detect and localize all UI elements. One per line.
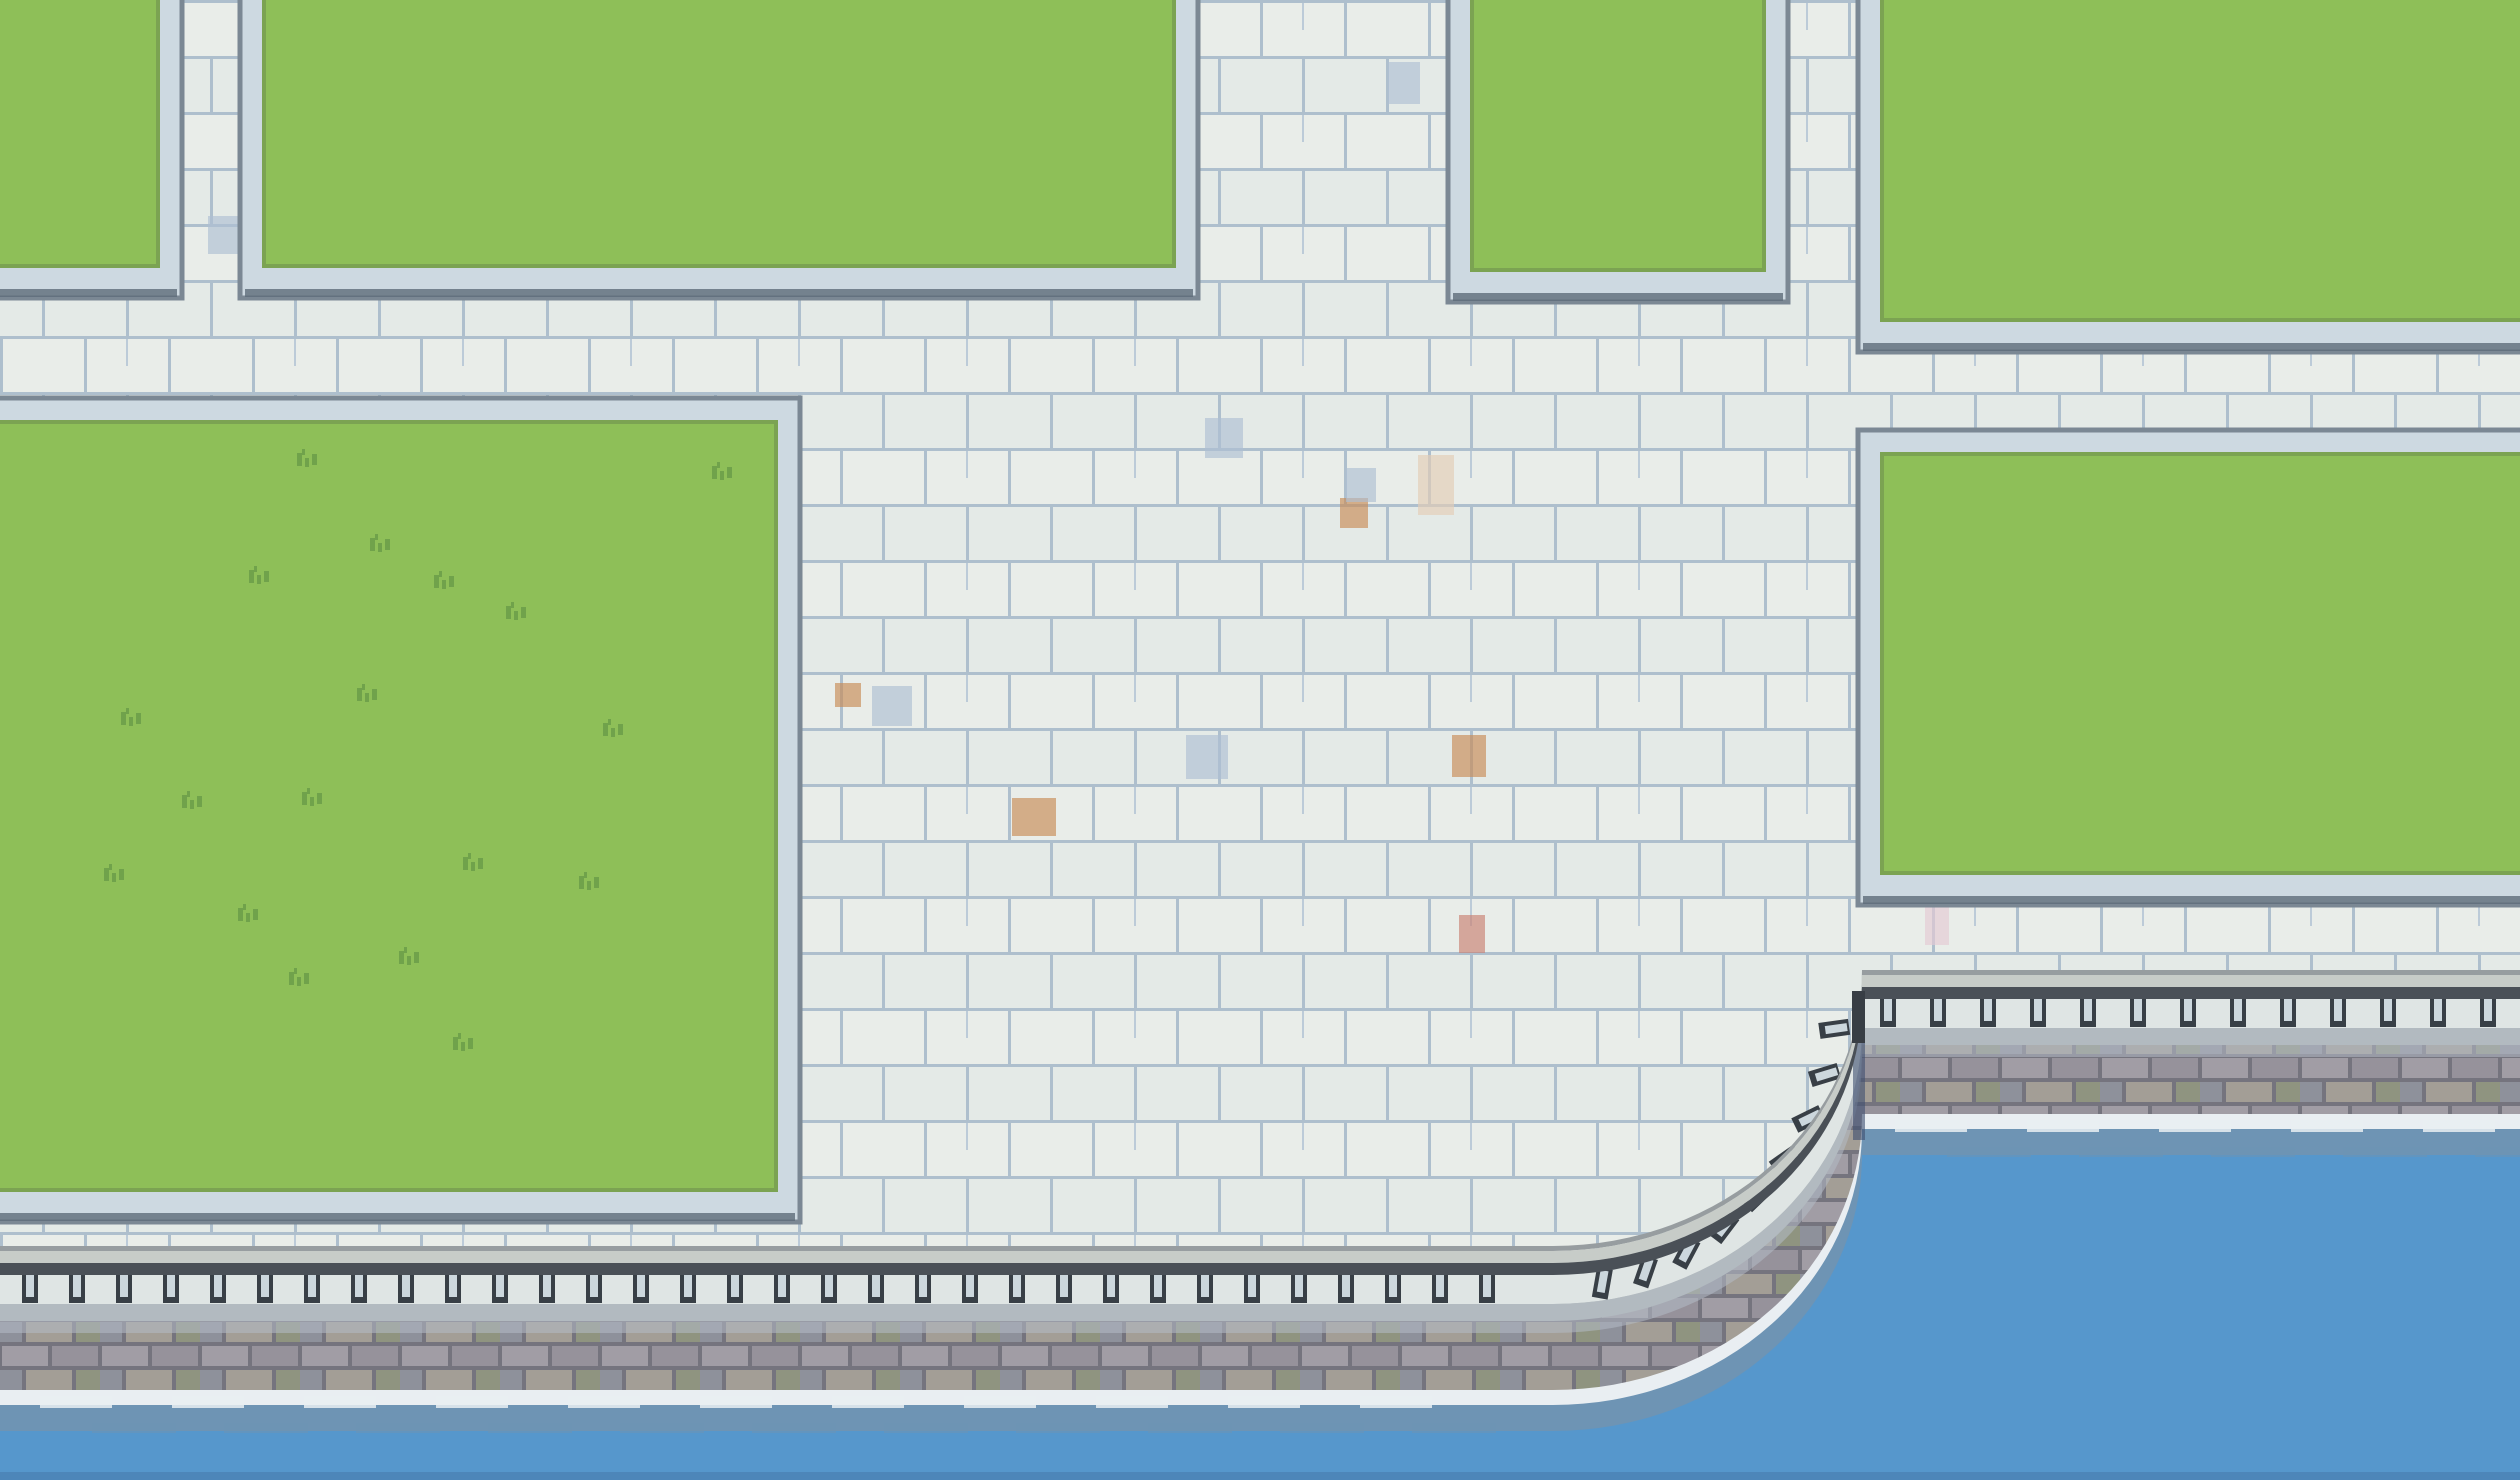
rail-post [1103, 1273, 1119, 1303]
rail-post [727, 1273, 743, 1303]
water-step [224, 1423, 308, 1433]
accent-tile [1012, 798, 1056, 836]
water-step [1148, 1423, 1232, 1433]
rail-post [633, 1273, 649, 1303]
rail-post [304, 1273, 320, 1303]
rail-post [680, 1273, 696, 1303]
grass-patch [0, 0, 182, 298]
accent-tile [1459, 915, 1485, 953]
rail-post [1150, 1273, 1166, 1303]
rail-post [2180, 997, 2196, 1027]
foam-step [700, 1396, 772, 1408]
rail-post [1197, 1273, 1213, 1303]
grass-area [0, 0, 158, 266]
foam-step [1895, 1120, 1967, 1132]
foam-step [2423, 1120, 2495, 1132]
rail-post [2280, 997, 2296, 1027]
rail-post [257, 1273, 273, 1303]
water-step [1947, 1147, 2031, 1157]
grass-curb-shadow [1863, 896, 2520, 904]
rail-post [774, 1273, 790, 1303]
accent-tile [1925, 903, 1949, 945]
rail-post [539, 1273, 555, 1303]
grass-curb-shadow [245, 289, 1193, 297]
rail-post [1930, 997, 1946, 1027]
rail-post [2480, 997, 2496, 1027]
rail-post [586, 1273, 602, 1303]
rail-post [2330, 997, 2346, 1027]
rail-post [1291, 1273, 1307, 1303]
game-viewport[interactable] [0, 0, 2520, 1480]
accent-tile [1418, 455, 1454, 515]
accent-tile [1186, 735, 1228, 779]
foam-step [2291, 1120, 2363, 1132]
foam-step [2159, 1120, 2231, 1132]
water-step [1280, 1423, 1364, 1433]
grass-patch [1858, 0, 2520, 352]
rail-post [1056, 1273, 1072, 1303]
accent-tile [1388, 62, 1420, 104]
foam-step [1096, 1396, 1168, 1408]
rail-post [22, 1273, 38, 1303]
rail-post [163, 1273, 179, 1303]
grass-area [1882, 0, 2520, 320]
grass-patch [1448, 0, 1788, 302]
rail-post [1980, 997, 1996, 1027]
foam-step [832, 1396, 904, 1408]
accent-tile [208, 216, 242, 254]
rail-post [868, 1273, 884, 1303]
water-step [752, 1423, 836, 1433]
rail-post [2080, 997, 2096, 1027]
grass-area [1472, 0, 1764, 270]
rail-post [1432, 1273, 1448, 1303]
rail-corner-post [1852, 991, 1865, 1043]
grass-patch [1858, 430, 2520, 905]
foam-step [568, 1396, 640, 1408]
water-step [488, 1423, 572, 1433]
grass-curb-shadow [0, 1213, 795, 1221]
rail-post [1244, 1273, 1260, 1303]
water-step [2211, 1147, 2295, 1157]
water-step [2343, 1147, 2427, 1157]
rail-post [821, 1273, 837, 1303]
foam-step [2027, 1120, 2099, 1132]
foam-step [172, 1396, 244, 1408]
grass-patch [0, 398, 800, 1222]
grass-curb-shadow [0, 289, 177, 297]
foam-step [40, 1396, 112, 1408]
rail-post [1009, 1273, 1025, 1303]
rail-post [351, 1273, 367, 1303]
grass-area [264, 0, 1174, 266]
water-step [2079, 1147, 2163, 1157]
scene-canvas[interactable] [0, 0, 2520, 1480]
rail-post [2230, 997, 2246, 1027]
rail-post [2130, 997, 2146, 1027]
grass-curb-shadow [1453, 293, 1783, 301]
rail-post [2030, 997, 2046, 1027]
water-step [356, 1423, 440, 1433]
rail-post [2380, 997, 2396, 1027]
rail-post [492, 1273, 508, 1303]
grass-area [1882, 454, 2520, 873]
foam-step [1228, 1396, 1300, 1408]
foam-step [1360, 1396, 1432, 1408]
rail-post [1385, 1273, 1401, 1303]
water-step [620, 1423, 704, 1433]
foam-step [304, 1396, 376, 1408]
foam-step [964, 1396, 1036, 1408]
rail-post [69, 1273, 85, 1303]
rail-post [962, 1273, 978, 1303]
foam-step [436, 1396, 508, 1408]
accent-tile [1452, 735, 1486, 777]
water-step [1412, 1423, 1496, 1433]
water-deep-edge [0, 1472, 2520, 1480]
grass-patch [240, 0, 1198, 298]
rail-post [1338, 1273, 1354, 1303]
water-step [92, 1423, 176, 1433]
rail-post [915, 1273, 931, 1303]
rail-post [2430, 997, 2446, 1027]
accent-tile [1346, 468, 1376, 502]
accent-tile [1340, 498, 1368, 528]
accent-tile [1205, 418, 1243, 458]
accent-tile [835, 683, 861, 707]
rail-post [1880, 997, 1896, 1027]
rail-post [210, 1273, 226, 1303]
water-step [884, 1423, 968, 1433]
water-step [2475, 1147, 2520, 1157]
grass-curb-shadow [1863, 343, 2520, 351]
rail-post [116, 1273, 132, 1303]
grass-area [0, 422, 776, 1190]
accent-tile [872, 686, 912, 726]
rail-post [1479, 1273, 1495, 1303]
rail-post [445, 1273, 461, 1303]
rail-post [398, 1273, 414, 1303]
water-step [1016, 1423, 1100, 1433]
